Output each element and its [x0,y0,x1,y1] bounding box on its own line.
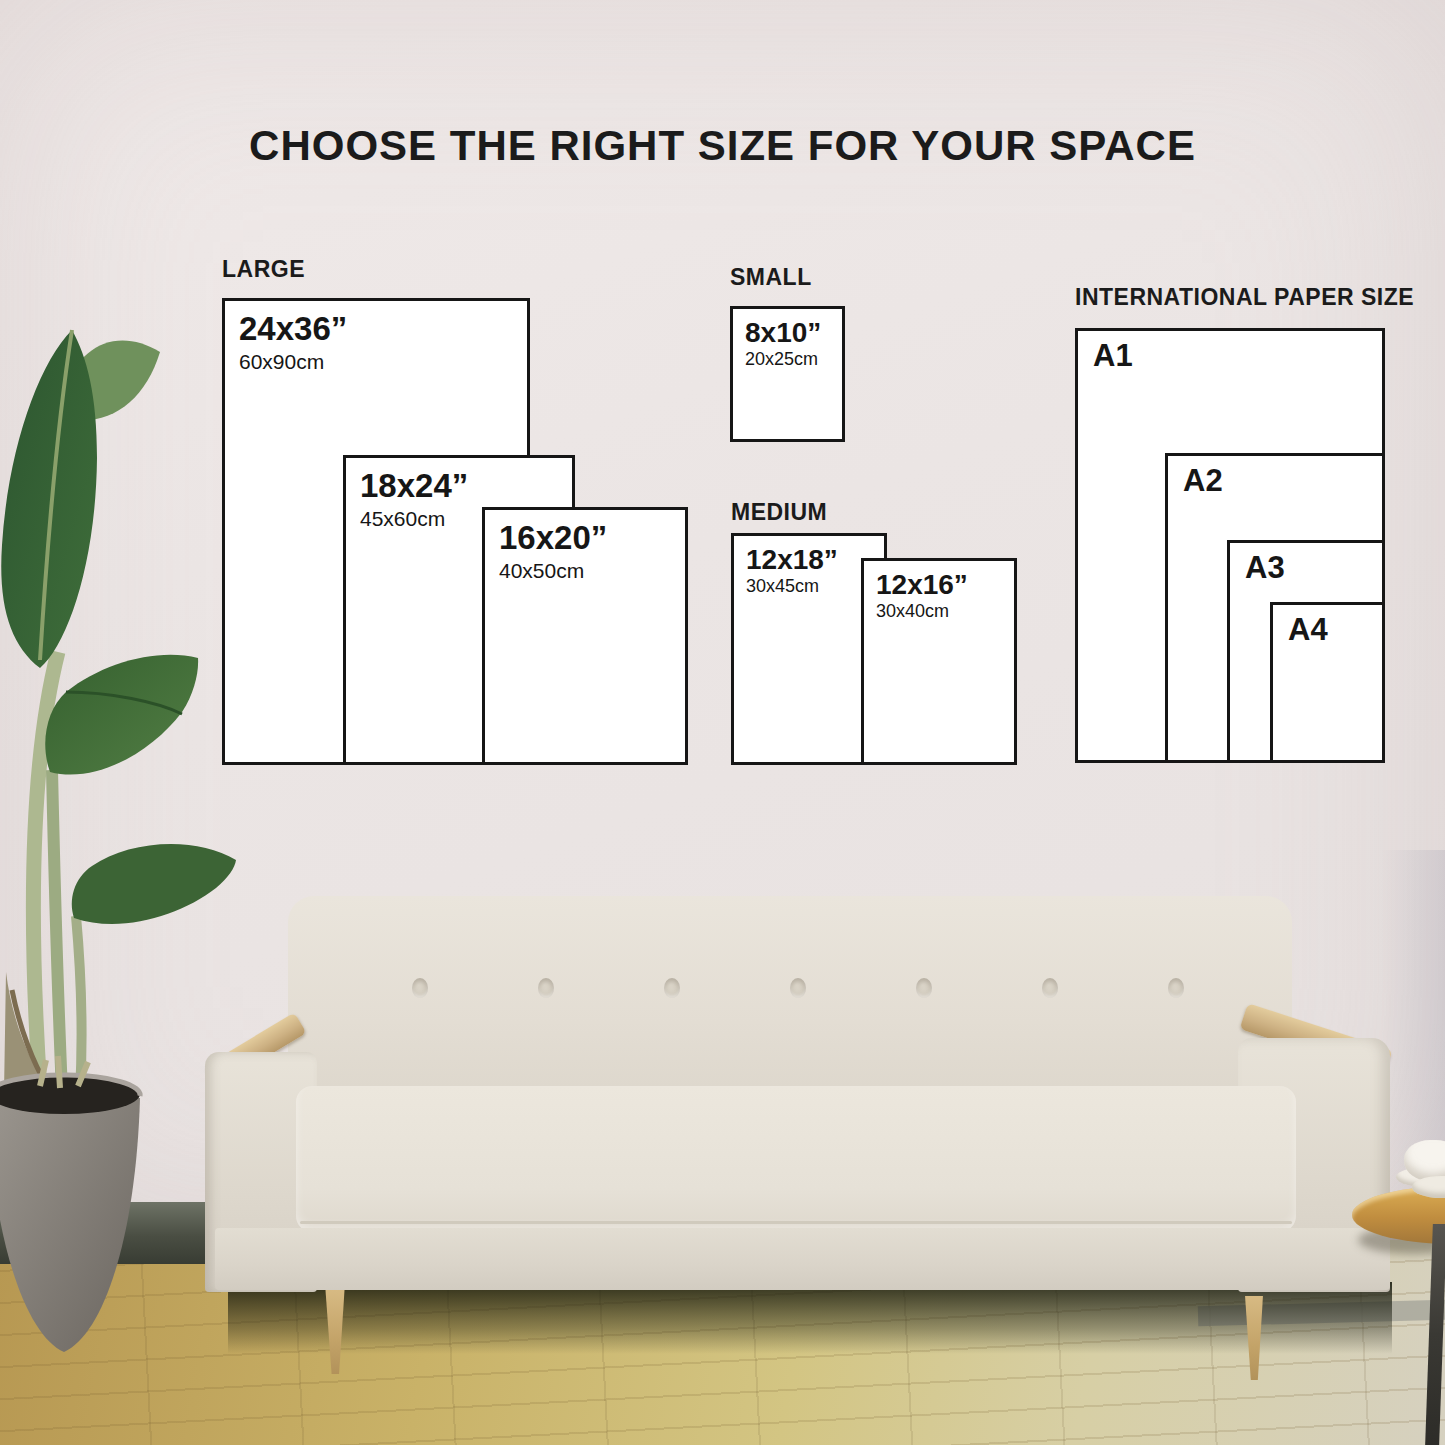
sofa-floor-shadow [228,1282,1392,1354]
leaf-upper-left [1,330,97,668]
leaf-lower [72,844,236,924]
plant-pot [0,1056,140,1352]
leaf-middle [45,655,198,775]
potted-plant [0,300,260,1360]
living-room-scene: CHOOSE THE RIGHT SIZE FOR YOUR SPACE LAR… [0,0,1445,1445]
